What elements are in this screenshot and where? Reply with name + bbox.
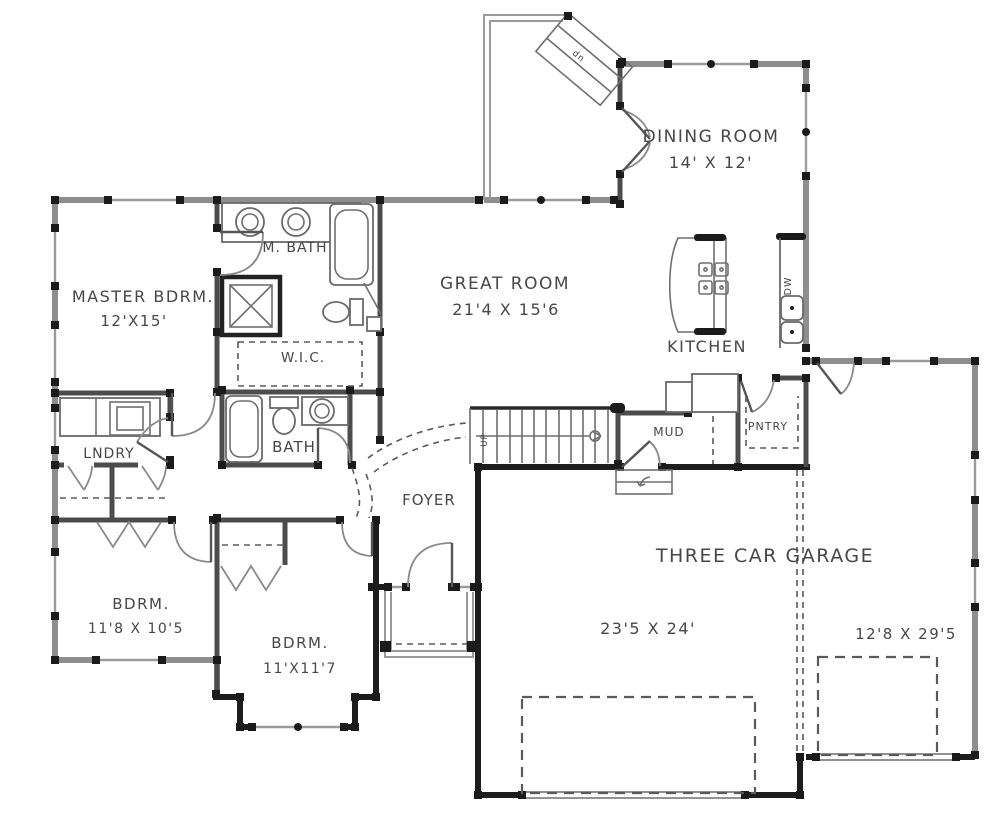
wall-caps [51, 12, 979, 799]
room-labels: DINING ROOM 14' X 12' GREAT ROOM 21'4 X … [72, 127, 957, 677]
bath2-door [318, 428, 350, 463]
dishwasher-label: DW [783, 277, 794, 296]
bdrm1-closet-bifold [97, 522, 161, 547]
stairs-up-label: UP [480, 433, 490, 446]
pantry-label: PNTRY [748, 420, 788, 433]
bdrm2-label: BDRM. [271, 634, 328, 652]
bath2-toilet [273, 408, 295, 434]
laundry-label: LNDRY [83, 446, 134, 462]
bdrm2-door [342, 522, 372, 556]
master-bdrm-label: MASTER BDRM. [72, 287, 214, 306]
front-porch [380, 589, 478, 657]
master-toilet-tank [350, 299, 363, 325]
master-bdrm-dims: 12'X15' [100, 312, 167, 330]
kitchen-sink [781, 296, 803, 343]
foyer-label: FOYER [402, 491, 456, 509]
vanity-sink-right [282, 208, 310, 236]
garage-entry-door [817, 363, 854, 394]
bdrm2-closet-bifold [221, 545, 283, 590]
garage-dims-bay: 12'8 X 29'5 [855, 625, 957, 643]
bath-label: BATH [272, 438, 316, 456]
bdrm1-door [174, 522, 211, 562]
great-room-label: GREAT ROOM [440, 274, 570, 294]
kitchen-fixtures: DW [670, 233, 806, 348]
garage-door-ceiling-right [818, 657, 937, 755]
mud-lockers [692, 374, 738, 412]
dining-room-label: DINING ROOM [643, 127, 780, 147]
windows [50, 59, 980, 732]
master-bath-label: M. BATH [262, 240, 327, 256]
garage-step [616, 470, 672, 494]
kitchen-island [670, 238, 726, 332]
kitchen-label: KITCHEN [667, 337, 747, 356]
garage-dims-main: 23'5 X 24' [600, 619, 696, 638]
bdrm2-dims: 11'X11'7 [263, 661, 337, 677]
staircase: UP [470, 403, 625, 464]
garage-door-ceiling-left [522, 697, 755, 793]
dining-room-dims: 14' X 12' [669, 153, 753, 172]
master-bedroom-door [172, 393, 215, 436]
master-toilet [323, 302, 349, 322]
bath2-toilet-tank [270, 397, 298, 408]
floor-plan-page: dn [0, 0, 1000, 813]
floor-plan-drawing: dn [0, 0, 1000, 813]
front-door [408, 543, 452, 587]
mud-label: MUD [653, 425, 684, 439]
mud-door [622, 441, 660, 467]
mud-bench [666, 382, 692, 412]
wic-label: W.I.C. [281, 350, 325, 366]
garage-label: THREE CAR GARAGE [655, 545, 874, 567]
deck-outline [484, 15, 567, 200]
bath2-sink [310, 399, 334, 423]
great-room-dims: 21'4 X 15'6 [452, 300, 560, 319]
deck-stairs-label: dn [570, 49, 587, 65]
bdrm1-dims: 11'8 X 10'5 [88, 621, 184, 637]
bdrm1-label: BDRM. [112, 595, 169, 613]
